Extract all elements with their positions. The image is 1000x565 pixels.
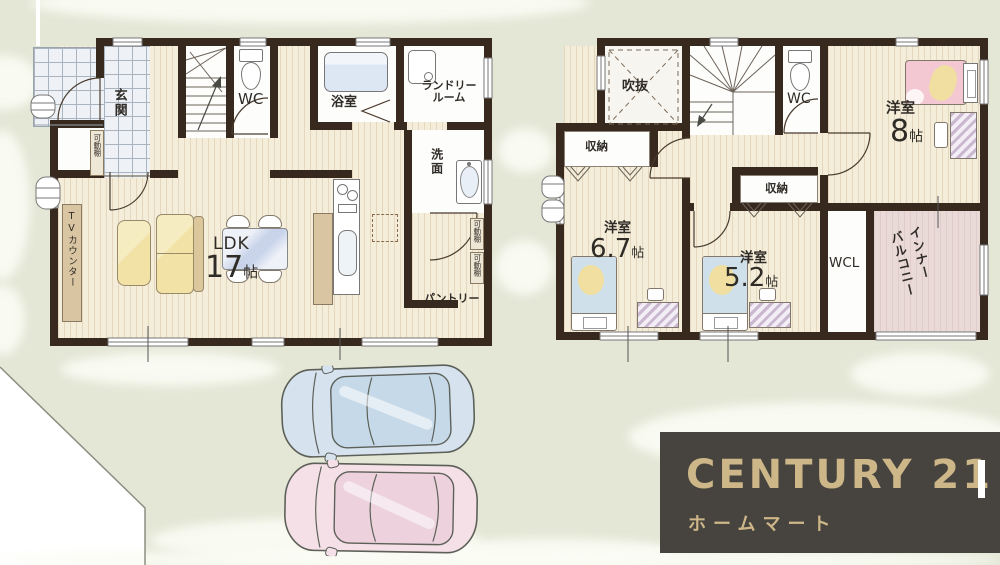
bed-room8 bbox=[905, 60, 967, 105]
toilet-2f bbox=[787, 50, 813, 94]
room67-size-unit: 帖 bbox=[631, 246, 644, 261]
label-room52-size: 5.2帖 bbox=[724, 265, 778, 292]
floorplan-page: TVカウンター bbox=[0, 0, 1000, 565]
desk-room67 bbox=[637, 302, 679, 328]
wcl-floor bbox=[828, 211, 866, 332]
label-void: 吹抜 bbox=[622, 80, 648, 94]
bed-room67 bbox=[571, 256, 617, 331]
chair-room67 bbox=[647, 288, 664, 301]
label-storage-1: 収納 bbox=[585, 140, 608, 152]
label-room8-size: 8帖 bbox=[890, 116, 923, 148]
label-room67-size: 6.7帖 bbox=[590, 236, 644, 263]
room8-size-number: 8 bbox=[890, 114, 909, 149]
desk-room52 bbox=[749, 302, 791, 328]
room67-size-number: 6.7 bbox=[590, 234, 631, 264]
car-pink bbox=[282, 459, 482, 558]
logo-brand-text: CENTURY 21 bbox=[686, 452, 993, 498]
logo-company-text: ホームマート bbox=[688, 510, 837, 536]
chair-room8 bbox=[934, 122, 948, 148]
label-wc-2f: WC bbox=[787, 92, 811, 107]
label-storage-2: 収納 bbox=[765, 182, 788, 194]
desk-room8 bbox=[950, 112, 977, 159]
room52-size-number: 5.2 bbox=[724, 263, 765, 293]
label-wcl: WCL bbox=[829, 256, 859, 270]
room52-size-unit: 帖 bbox=[765, 275, 778, 290]
room8-size-unit: 帖 bbox=[909, 129, 923, 145]
logo-bar bbox=[978, 460, 985, 498]
stairs-2f-floor bbox=[690, 46, 775, 135]
nightstand-room8 bbox=[963, 63, 978, 103]
car-blue bbox=[278, 361, 479, 464]
century21-logo: CENTURY 21 ホームマート bbox=[660, 432, 1000, 553]
